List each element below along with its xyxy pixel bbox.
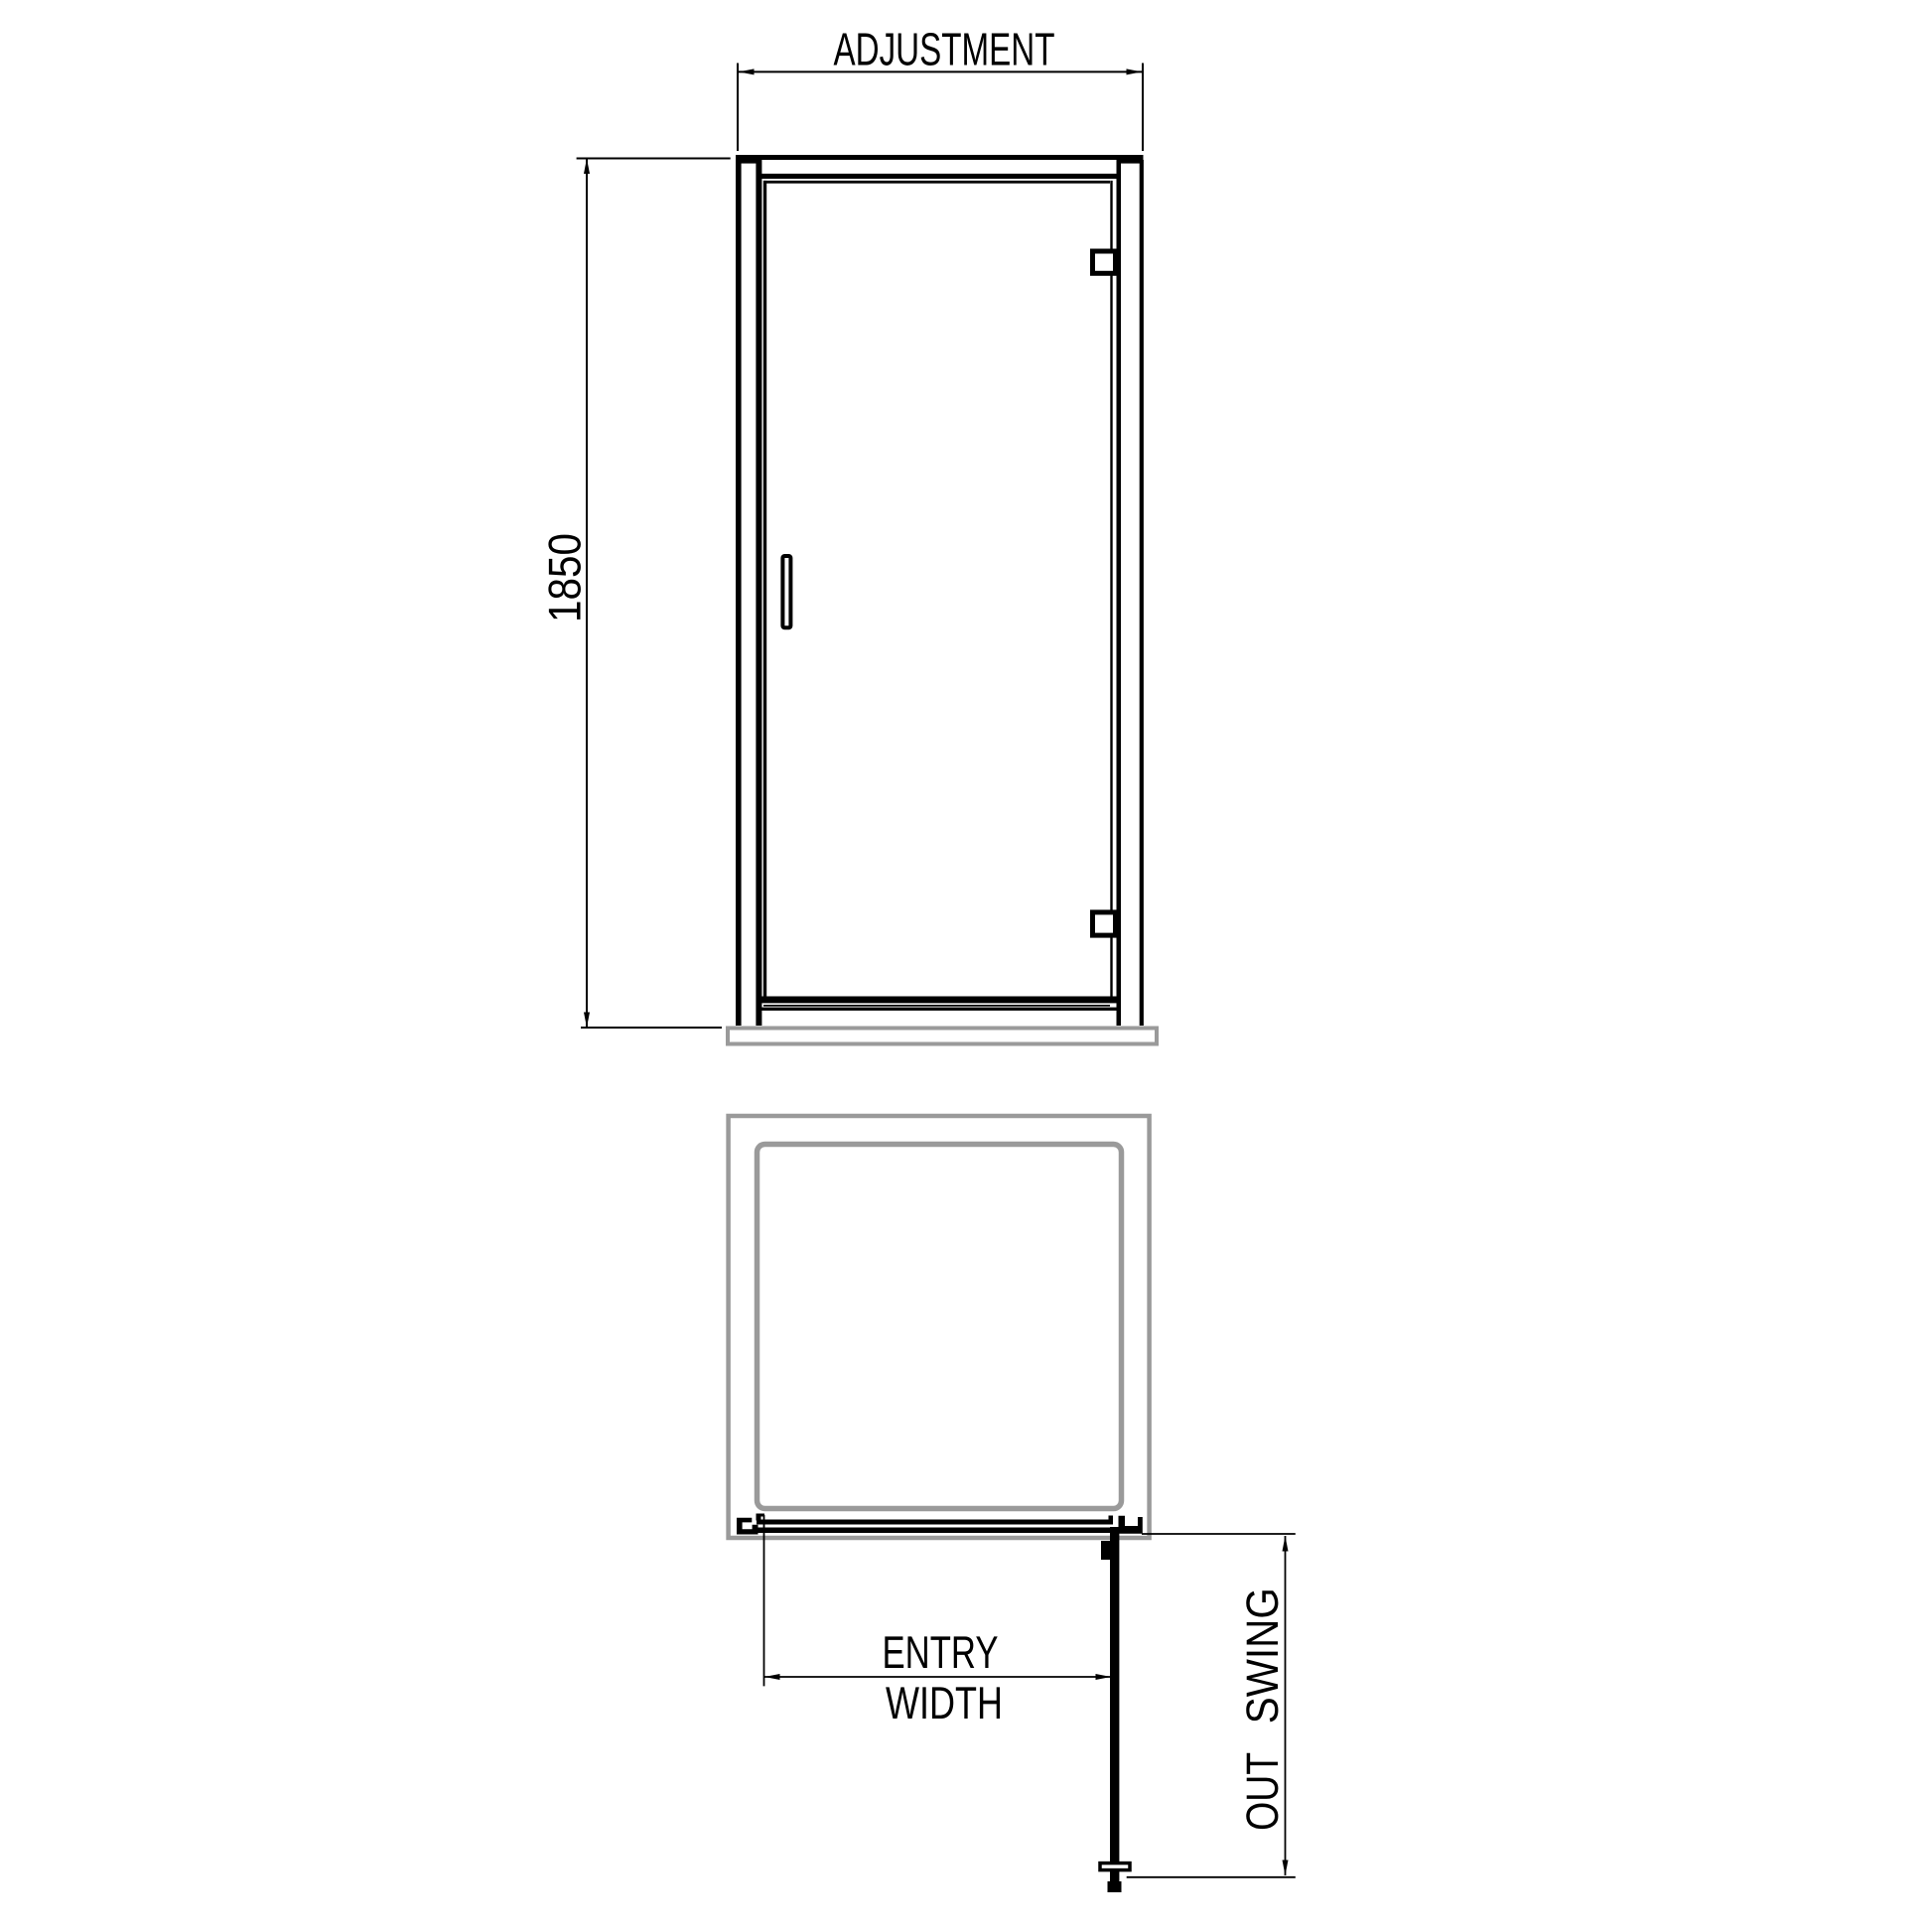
svg-text:ENTRY: ENTRY (883, 1626, 999, 1678)
svg-text:SWING: SWING (1237, 1587, 1288, 1724)
svg-text:OUT: OUT (1237, 1752, 1288, 1831)
svg-text:WIDTH: WIDTH (886, 1677, 1003, 1728)
svg-text:ADJUSTMENT: ADJUSTMENT (834, 24, 1055, 75)
svg-text:1850: 1850 (539, 533, 591, 622)
